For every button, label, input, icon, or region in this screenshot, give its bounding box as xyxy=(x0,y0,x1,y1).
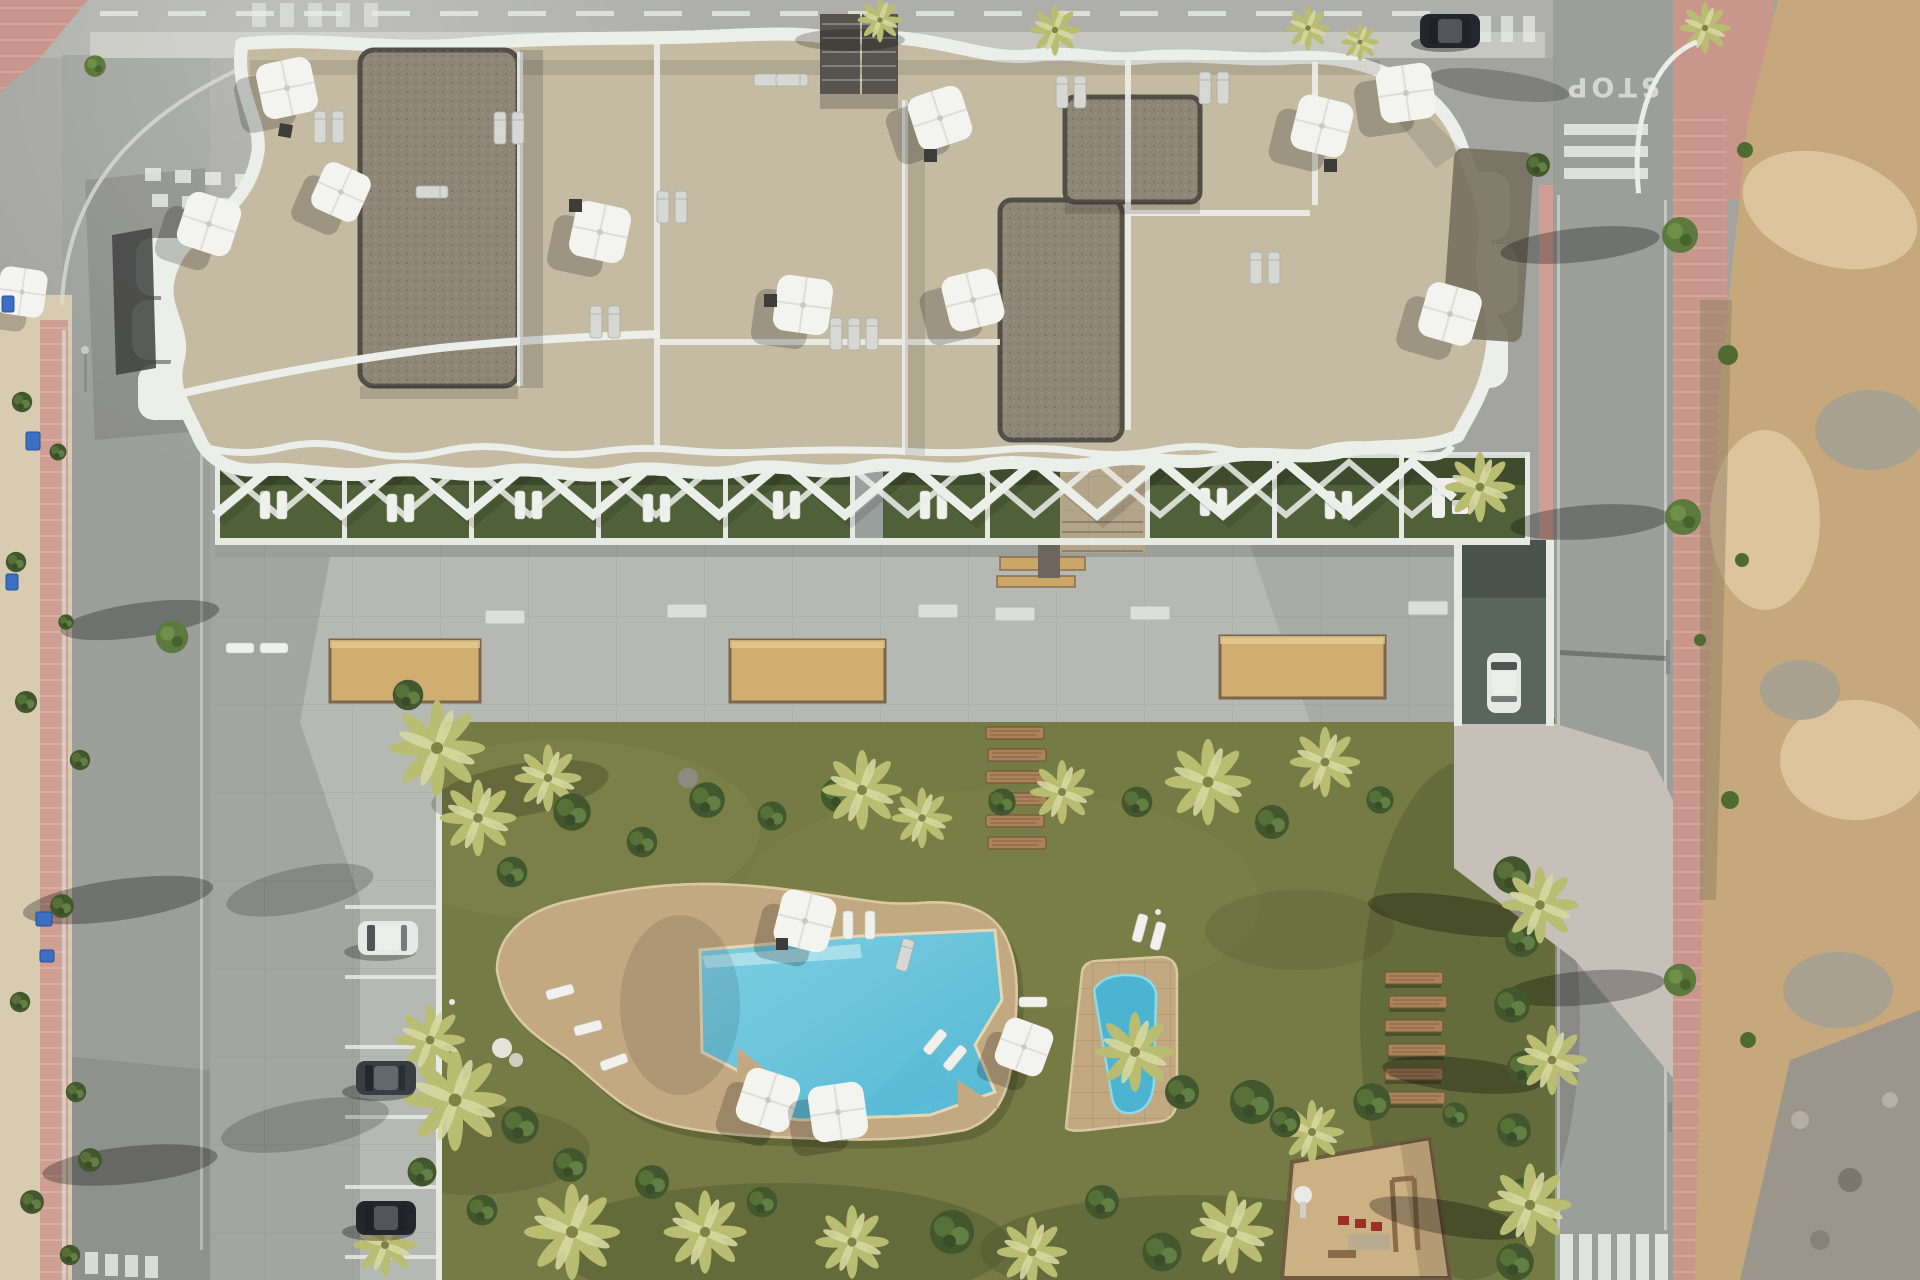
weed xyxy=(1718,345,1738,365)
parasol xyxy=(1374,61,1437,124)
gravel-texture xyxy=(360,50,518,386)
lamp-post xyxy=(84,352,87,392)
lamp-head xyxy=(81,346,89,354)
entrance-timber-step xyxy=(997,576,1075,587)
lamp-post xyxy=(1668,1102,1672,1132)
gravel-texture xyxy=(1000,200,1122,440)
lamp-post xyxy=(1666,640,1670,674)
garden-front-wall xyxy=(215,538,1530,545)
crosswalk-top-road-right xyxy=(1479,16,1535,42)
fountain xyxy=(1294,1186,1312,1204)
deck-bench xyxy=(995,607,1035,621)
car-on-ramp xyxy=(1487,653,1521,713)
left-curb xyxy=(62,330,66,1280)
ramp-wall xyxy=(1546,540,1554,726)
ramp-shade xyxy=(1462,540,1546,598)
aerial-render-image: STOP xyxy=(0,0,1920,1280)
dirt-rock-patch xyxy=(1815,390,1920,470)
stone xyxy=(1882,1092,1898,1108)
lamp-base xyxy=(1634,193,1644,203)
weed xyxy=(1737,142,1753,158)
deck-bench xyxy=(1130,606,1170,620)
gravel-texture xyxy=(1065,97,1200,202)
west-wall-shadow xyxy=(112,228,156,375)
stone xyxy=(1810,1230,1830,1250)
deck-bench xyxy=(1408,601,1448,615)
planter-highlight xyxy=(330,640,480,648)
deck-lounger xyxy=(226,643,254,653)
planter-highlight xyxy=(1220,636,1385,644)
pool-table xyxy=(776,938,788,950)
weed xyxy=(1721,791,1739,809)
deck-bench xyxy=(918,604,958,618)
play-bench xyxy=(1328,1250,1356,1258)
car-dark-top-road xyxy=(1420,14,1480,48)
left-road-edge-line xyxy=(200,430,203,1250)
sand-planter xyxy=(1220,636,1385,698)
right-road-edge-line xyxy=(1664,200,1667,1230)
stone xyxy=(1838,1168,1862,1192)
deck-lounger xyxy=(260,643,288,653)
ramp-wall xyxy=(1454,540,1462,726)
dirt-rock-patch xyxy=(1783,952,1893,1028)
dirt-rock-patch xyxy=(1760,660,1840,720)
car-gray-parked xyxy=(356,1061,416,1095)
play-mat xyxy=(1348,1234,1390,1250)
parasol xyxy=(254,55,320,121)
weed xyxy=(1740,1032,1756,1048)
fountain-base xyxy=(1300,1202,1306,1218)
deck-bench xyxy=(485,610,525,624)
sand-planter xyxy=(730,640,885,702)
entrance-side-wall xyxy=(1038,540,1060,578)
stone xyxy=(1791,1111,1809,1129)
planter-highlight xyxy=(730,640,885,648)
car-white-parked xyxy=(358,921,418,955)
garden-light xyxy=(1155,909,1161,915)
car-dark-parked xyxy=(356,1201,416,1235)
weed xyxy=(1694,634,1706,646)
garden-light xyxy=(449,999,455,1005)
deck-bench xyxy=(667,604,707,618)
parasol xyxy=(771,273,834,336)
scene-svg: STOP xyxy=(0,0,1920,1280)
weed xyxy=(1735,553,1749,567)
parasol xyxy=(806,1080,869,1143)
